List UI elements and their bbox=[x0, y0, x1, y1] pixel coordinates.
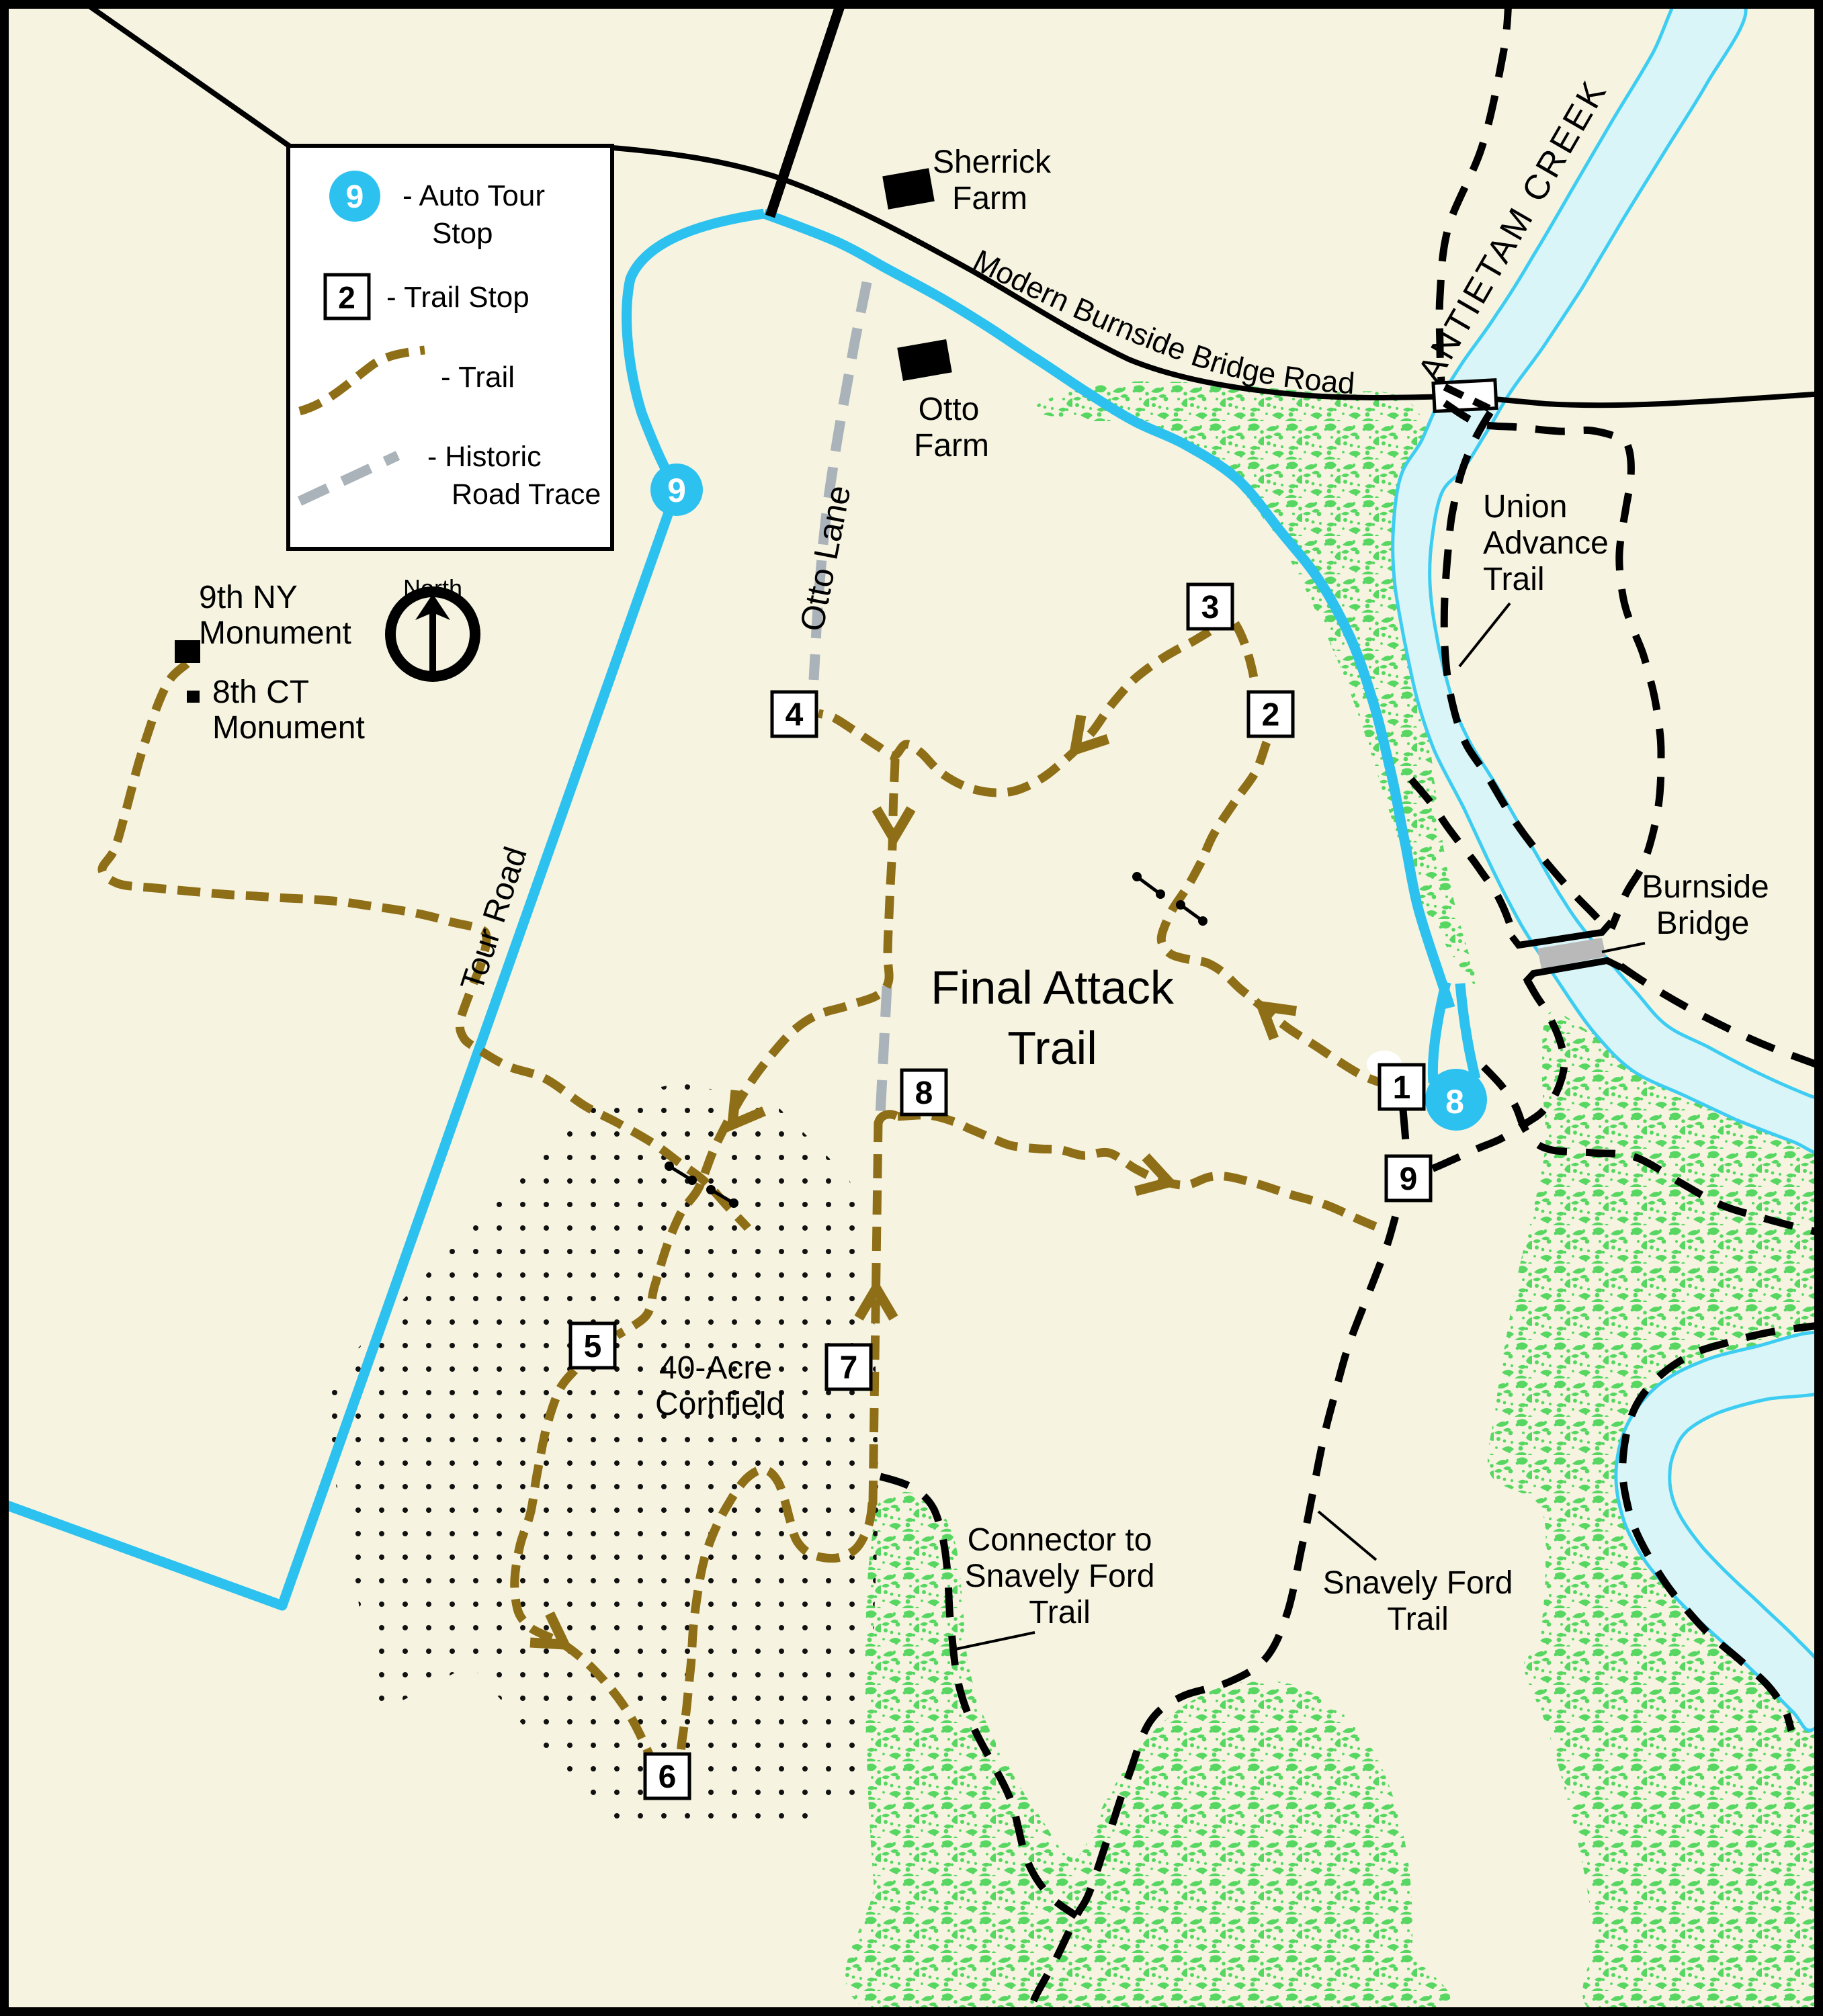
svg-text:5: 5 bbox=[584, 1329, 602, 1364]
svg-text:Connector to: Connector to bbox=[968, 1522, 1152, 1558]
svg-text:3: 3 bbox=[1201, 590, 1220, 625]
svg-text:9: 9 bbox=[667, 472, 686, 509]
svg-text:Sherrick: Sherrick bbox=[933, 144, 1052, 180]
svg-text:9: 9 bbox=[346, 179, 364, 215]
svg-text:Burnside: Burnside bbox=[1642, 869, 1769, 905]
svg-text:9th NY: 9th NY bbox=[199, 580, 298, 615]
svg-text:Road Trace: Road Trace bbox=[452, 478, 601, 511]
svg-text:North: North bbox=[403, 574, 462, 602]
svg-text:- Trail: - Trail bbox=[441, 361, 515, 394]
svg-text:9: 9 bbox=[1400, 1162, 1418, 1197]
svg-text:Final Attack: Final Attack bbox=[931, 961, 1175, 1014]
svg-text:Cornfield: Cornfield bbox=[655, 1387, 784, 1422]
svg-text:- Auto Tour: - Auto Tour bbox=[402, 179, 545, 212]
svg-text:- Historic: - Historic bbox=[427, 441, 542, 473]
svg-text:8: 8 bbox=[1445, 1083, 1464, 1121]
svg-text:Farm: Farm bbox=[952, 181, 1027, 216]
svg-text:2: 2 bbox=[1262, 697, 1280, 733]
svg-text:Farm: Farm bbox=[914, 428, 989, 464]
svg-text:7: 7 bbox=[840, 1350, 858, 1386]
svg-text:Snavely Ford: Snavely Ford bbox=[965, 1559, 1155, 1594]
svg-text:4: 4 bbox=[786, 697, 804, 733]
svg-text:Otto: Otto bbox=[919, 392, 980, 427]
svg-text:Trail: Trail bbox=[1387, 1602, 1449, 1637]
svg-text:8: 8 bbox=[915, 1076, 933, 1111]
svg-text:8th CT: 8th CT bbox=[212, 674, 309, 710]
svg-text:Trail: Trail bbox=[1483, 562, 1545, 597]
svg-text:Monument: Monument bbox=[212, 710, 365, 746]
svg-text:1: 1 bbox=[1393, 1070, 1411, 1106]
svg-text:Trail: Trail bbox=[1007, 1022, 1097, 1074]
svg-text:- Trail Stop: - Trail Stop bbox=[386, 281, 529, 314]
svg-text:Advance: Advance bbox=[1483, 525, 1609, 561]
svg-text:Stop: Stop bbox=[432, 217, 493, 250]
svg-text:2: 2 bbox=[338, 280, 355, 315]
svg-text:Bridge: Bridge bbox=[1656, 906, 1750, 941]
svg-text:6: 6 bbox=[659, 1759, 677, 1795]
svg-text:Monument: Monument bbox=[199, 615, 351, 651]
svg-text:40-Acre: 40-Acre bbox=[659, 1350, 772, 1386]
svg-text:Trail: Trail bbox=[1029, 1595, 1091, 1630]
svg-text:Union: Union bbox=[1483, 489, 1567, 525]
svg-text:Snavely Ford: Snavely Ford bbox=[1323, 1565, 1513, 1601]
